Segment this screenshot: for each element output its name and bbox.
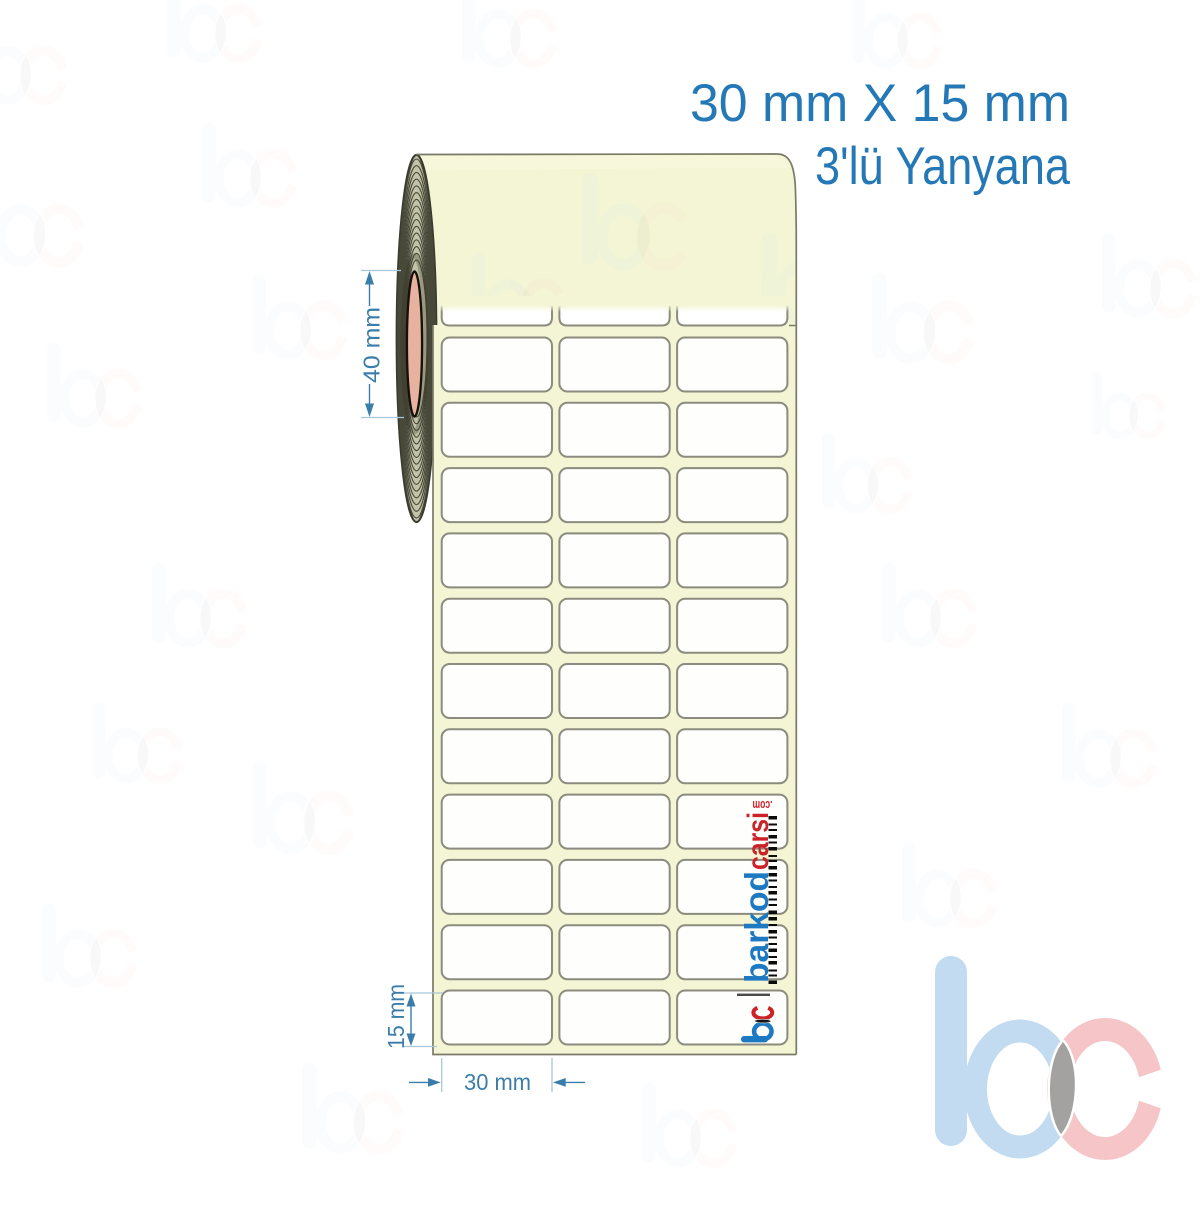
- svg-text:3'lü Yanyana: 3'lü Yanyana: [815, 137, 1070, 196]
- svg-text:30 mm: 30 mm: [464, 1069, 531, 1095]
- svg-text:40 mm: 40 mm: [359, 307, 385, 383]
- svg-text:.com: .com: [753, 798, 773, 813]
- svg-text:30 mm X 15 mm: 30 mm X 15 mm: [690, 74, 1070, 133]
- svg-text:15 mm: 15 mm: [383, 984, 409, 1049]
